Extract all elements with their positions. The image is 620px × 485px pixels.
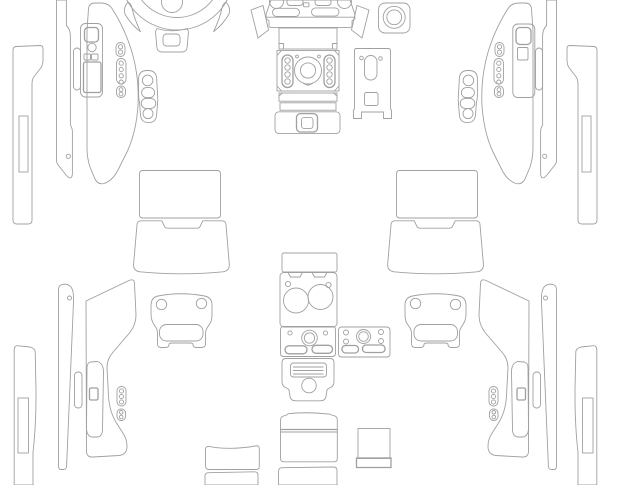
door-strip-front-left-shape — [74, 48, 81, 90]
bpillar-strip-rear-left — [59, 284, 74, 469]
radio-faceplate-shape — [338, 0, 352, 9]
door-pull-rear-right-shape — [450, 299, 460, 309]
stack-blade-right-shape — [352, 6, 370, 39]
stack-trim-strip-upper-shape — [279, 93, 337, 101]
door-pull-rear-left-shape — [160, 325, 204, 342]
trim-plate-e-shape — [357, 458, 392, 468]
bpillar-strip-rear-right-shape — [541, 284, 556, 469]
console-rear-switch-panel-shape — [342, 346, 359, 354]
door-strip-rear-right-shape — [533, 372, 541, 408]
door-upper-panel-left-shape — [140, 171, 221, 219]
window-switch-panel-front-right-shape — [518, 48, 529, 61]
console-rear-switch-panel-shape — [379, 330, 384, 335]
door-pull-front-left — [139, 71, 158, 123]
instrument-cluster-bezel-shape — [133, 0, 222, 18]
door-strip-rear-left-shape — [75, 372, 83, 408]
climate-control-panel-shape — [285, 58, 290, 63]
door-strip-rear-left — [75, 372, 83, 408]
door-lower-panel-right-shape — [388, 221, 484, 274]
door-trim-rear-right-shape — [489, 387, 498, 407]
door-trim-front-left-shape — [119, 67, 123, 71]
door-strip-rear-right — [533, 372, 541, 408]
door-pull-front-right-shape — [458, 71, 477, 123]
stack-blade-right — [352, 6, 370, 39]
stack-lower-bezel-panel-shape — [302, 118, 314, 129]
door-pull-rear-right-shape — [410, 298, 420, 308]
apillar-trim-front-left — [57, 0, 73, 178]
console-cupholder-panel-shape — [285, 281, 290, 286]
trim-plate-a-shape — [206, 446, 260, 470]
console-cupholder-panel-shape — [284, 288, 309, 313]
stack-upper-panel-shape — [333, 44, 338, 50]
console-shifter-panel — [281, 327, 336, 357]
console-rear-switch-panel-shape — [379, 339, 384, 344]
radio-faceplate-shape — [287, 0, 303, 6]
door-trim-rear-right — [479, 280, 529, 457]
door-strip-front-right — [536, 48, 543, 90]
door-strip-front-left — [74, 48, 81, 90]
climate-control-panel-shape — [277, 86, 282, 91]
trim-plate-b — [205, 472, 258, 485]
clock-bezel-shape — [387, 10, 402, 25]
climate-control-panel-shape — [327, 72, 332, 77]
radio-faceplate-shape — [270, 0, 284, 9]
sill-trim-rear-right-shape — [583, 398, 594, 453]
sill-trim-front-left — [13, 46, 43, 225]
door-pull-rear-right-shape — [405, 294, 466, 348]
trim-plate-d-shape — [279, 467, 338, 485]
window-switch-panel-front-left — [81, 24, 103, 98]
console-cupholder-panel-shape — [312, 273, 327, 278]
console-cupholder-panel-shape — [288, 273, 303, 278]
door-trim-rear-left-shape — [117, 387, 126, 407]
door-lower-panel-right — [388, 221, 484, 274]
door-pull-rear-left-shape — [156, 299, 166, 309]
window-switch-panel-front-right — [513, 24, 535, 98]
climate-control-panel-shape — [324, 55, 335, 88]
sill-trim-front-left-shape — [19, 116, 28, 172]
door-trim-rear-left-shape — [90, 388, 99, 400]
apillar-trim-front-right — [541, 0, 557, 178]
bpillar-strip-rear-left-shape — [59, 284, 74, 469]
console-side-plate-shape — [365, 56, 378, 81]
console-cupholder-panel — [280, 273, 337, 328]
door-trim-front-left-shape — [118, 45, 122, 49]
stack-lower-bezel-panel-shape — [297, 114, 318, 132]
door-trim-front-right-shape — [482, 3, 533, 184]
bpillar-strip-rear-right — [541, 284, 556, 469]
door-trim-rear-left-shape — [86, 280, 136, 457]
door-trim-front-left-shape — [118, 50, 122, 54]
console-vent-panel-shape — [291, 363, 327, 377]
door-trim-front-right-shape — [497, 45, 501, 49]
door-trim-rear-right-shape — [479, 280, 529, 457]
console-rear-switch-panel — [339, 327, 391, 357]
climate-control-panel-shape — [318, 55, 321, 58]
door-trim-rear-right-shape — [491, 400, 495, 404]
door-pull-front-left-shape — [139, 71, 158, 123]
console-shifter-panel-shape — [323, 331, 327, 335]
door-pull-rear-left-shape — [196, 298, 206, 308]
door-upper-panel-right-shape — [397, 171, 478, 219]
sill-trim-front-right-shape — [582, 116, 591, 172]
trim-kit-pattern-canvas — [0, 0, 620, 485]
climate-control-panel-shape — [295, 57, 322, 84]
climate-control-panel-shape — [296, 55, 299, 58]
sill-trim-rear-right-shape — [575, 346, 597, 485]
stack-upper-panel-shape — [279, 28, 337, 49]
radio-faceplate-shape — [315, 0, 331, 6]
door-pull-rear-right-shape — [414, 325, 458, 342]
climate-control-panel-shape — [282, 55, 293, 88]
door-upper-panel-right — [397, 171, 478, 219]
instrument-cluster-bezel — [120, 0, 234, 52]
door-lower-panel-left — [134, 221, 230, 274]
door-pull-front-right-shape — [461, 88, 474, 98]
door-pull-rear-left-shape — [151, 294, 212, 348]
door-trim-front-right-shape — [497, 50, 501, 54]
climate-control-panel-shape — [327, 58, 332, 63]
console-side-plate-shape — [379, 57, 383, 61]
console-side-plate-shape — [365, 93, 379, 106]
radio-faceplate-shape — [304, 3, 310, 7]
trim-plate-a — [206, 446, 260, 470]
door-trim-front-right-shape — [497, 92, 501, 96]
window-switch-panel-front-left-shape — [88, 43, 96, 51]
sill-trim-front-right — [567, 46, 597, 225]
apillar-trim-front-right-shape — [541, 0, 557, 178]
climate-control-panel-shape — [327, 79, 332, 84]
door-trim-rear-left-shape — [119, 400, 123, 404]
door-pull-rear-right — [405, 294, 466, 348]
door-pull-front-left-shape — [143, 109, 153, 119]
console-rear-switch-panel-shape — [344, 330, 349, 335]
door-lower-panel-left-shape — [134, 221, 230, 274]
bpillar-strip-rear-left-shape — [68, 296, 72, 300]
apillar-trim-front-left-shape — [66, 154, 70, 158]
instrument-cluster-bezel-shape — [162, 0, 183, 13]
stack-lower-bezel-panel — [275, 112, 340, 134]
apillar-trim-front-left-shape — [57, 0, 73, 178]
door-trim-rear-left-shape — [119, 411, 123, 415]
trim-kit-pattern-sheet — [0, 0, 620, 485]
door-pull-front-right-shape — [463, 109, 473, 119]
console-shifter-panel-shape — [288, 331, 292, 335]
door-trim-front-left-shape — [119, 61, 123, 65]
trim-plate-e — [357, 429, 392, 468]
console-cupholder-panel-shape — [308, 285, 333, 310]
stack-blade-left-shape — [251, 6, 269, 39]
climate-control-panel — [277, 51, 339, 92]
door-pull-front-left-shape — [141, 98, 156, 108]
door-trim-rear-right-shape — [492, 415, 496, 419]
stack-upper-panel-shape — [279, 44, 284, 50]
door-trim-rear-left-shape — [119, 394, 123, 398]
sill-trim-rear-right — [575, 346, 597, 485]
stack-blade-left — [251, 6, 269, 39]
console-shifter-panel-shape — [312, 345, 333, 353]
door-trim-front-left-shape — [119, 92, 123, 96]
door-pull-front-left-shape — [142, 75, 153, 86]
console-rear-switch-panel-shape — [359, 332, 369, 342]
trim-plate-d — [279, 467, 338, 485]
sill-trim-rear-left — [14, 346, 36, 485]
door-trim-front-right-shape — [497, 61, 501, 65]
window-switch-panel-front-left-shape — [92, 54, 99, 60]
console-side-plate-shape — [360, 56, 364, 60]
console-side-plate — [354, 49, 392, 119]
trim-plate-c-shape — [281, 413, 338, 462]
console-top-plate — [282, 253, 337, 272]
door-trim-rear-right-shape — [491, 394, 495, 398]
door-trim-rear-left — [86, 280, 136, 457]
door-trim-front-right — [482, 3, 533, 184]
instrument-cluster-bezel-shape — [214, 2, 230, 32]
radio-faceplate-shape — [312, 8, 340, 16]
console-top-plate-shape — [282, 253, 337, 272]
climate-control-panel-shape — [277, 51, 282, 56]
stack-upper-panel — [279, 28, 337, 49]
door-trim-front-right-shape — [497, 67, 501, 71]
instrument-cluster-bezel-shape — [163, 34, 180, 46]
trim-plate-e-shape — [358, 429, 390, 459]
radio-faceplate-shape — [266, 0, 355, 27]
console-rear-switch-panel-shape — [363, 345, 386, 353]
climate-control-panel-shape — [327, 65, 332, 70]
climate-control-panel-shape — [300, 63, 315, 78]
door-strip-front-right-shape — [536, 48, 543, 90]
clock-bezel — [379, 3, 411, 33]
door-pull-front-left-shape — [142, 88, 155, 98]
door-trim-front-left-shape — [87, 3, 138, 184]
stack-lower-bezel-panel-shape — [275, 112, 340, 134]
sill-trim-rear-left-shape — [18, 398, 29, 453]
window-switch-panel-front-right-shape — [516, 28, 531, 45]
climate-control-panel-shape — [285, 72, 290, 77]
door-upper-panel-left — [140, 171, 221, 219]
instrument-cluster-bezel-shape — [124, 2, 140, 32]
window-switch-panel-front-left-shape — [84, 62, 102, 93]
door-trim-rear-left-shape — [119, 389, 123, 393]
door-trim-front-right-shape — [497, 74, 501, 78]
stack-trim-strip-upper — [279, 93, 337, 101]
apillar-trim-front-right-shape — [543, 154, 547, 158]
radio-faceplate-shape — [273, 8, 300, 16]
door-trim-rear-left-shape — [119, 415, 123, 419]
console-shifter-panel-shape — [285, 346, 307, 354]
door-trim-rear-right-shape — [492, 411, 496, 415]
door-pull-rear-left — [151, 294, 212, 348]
console-vent-panel — [282, 359, 334, 401]
climate-control-panel-shape — [335, 51, 340, 56]
console-vent-panel-shape — [302, 378, 317, 393]
trim-plate-c — [281, 413, 338, 462]
console-rear-switch-panel-shape — [344, 339, 349, 344]
door-pull-front-right-shape — [463, 75, 474, 86]
door-trim-front-left-shape — [119, 88, 123, 92]
bpillar-strip-rear-right-shape — [544, 296, 548, 300]
door-pull-front-right — [458, 71, 477, 123]
trim-plate-b-shape — [205, 472, 258, 485]
door-pull-front-right-shape — [460, 98, 475, 108]
instrument-cluster-bezel-shape — [156, 29, 189, 53]
sill-trim-rear-left-shape — [14, 346, 36, 485]
climate-control-panel-shape — [285, 79, 290, 84]
stack-trim-strip-lower-shape — [280, 103, 336, 110]
door-trim-rear-right-shape — [491, 389, 495, 393]
console-shifter-panel-shape — [304, 333, 314, 343]
door-trim-front-left — [87, 3, 138, 184]
stack-trim-strip-lower — [280, 103, 336, 110]
radio-faceplate — [266, 0, 355, 27]
door-trim-rear-right-shape — [517, 388, 526, 400]
door-trim-front-right-shape — [497, 88, 501, 92]
console-side-plate-shape — [354, 49, 392, 119]
instrument-cluster-bezel-shape — [120, 0, 234, 30]
climate-control-panel-shape — [285, 65, 290, 70]
door-trim-front-left-shape — [119, 74, 123, 78]
climate-control-panel-shape — [335, 86, 340, 91]
